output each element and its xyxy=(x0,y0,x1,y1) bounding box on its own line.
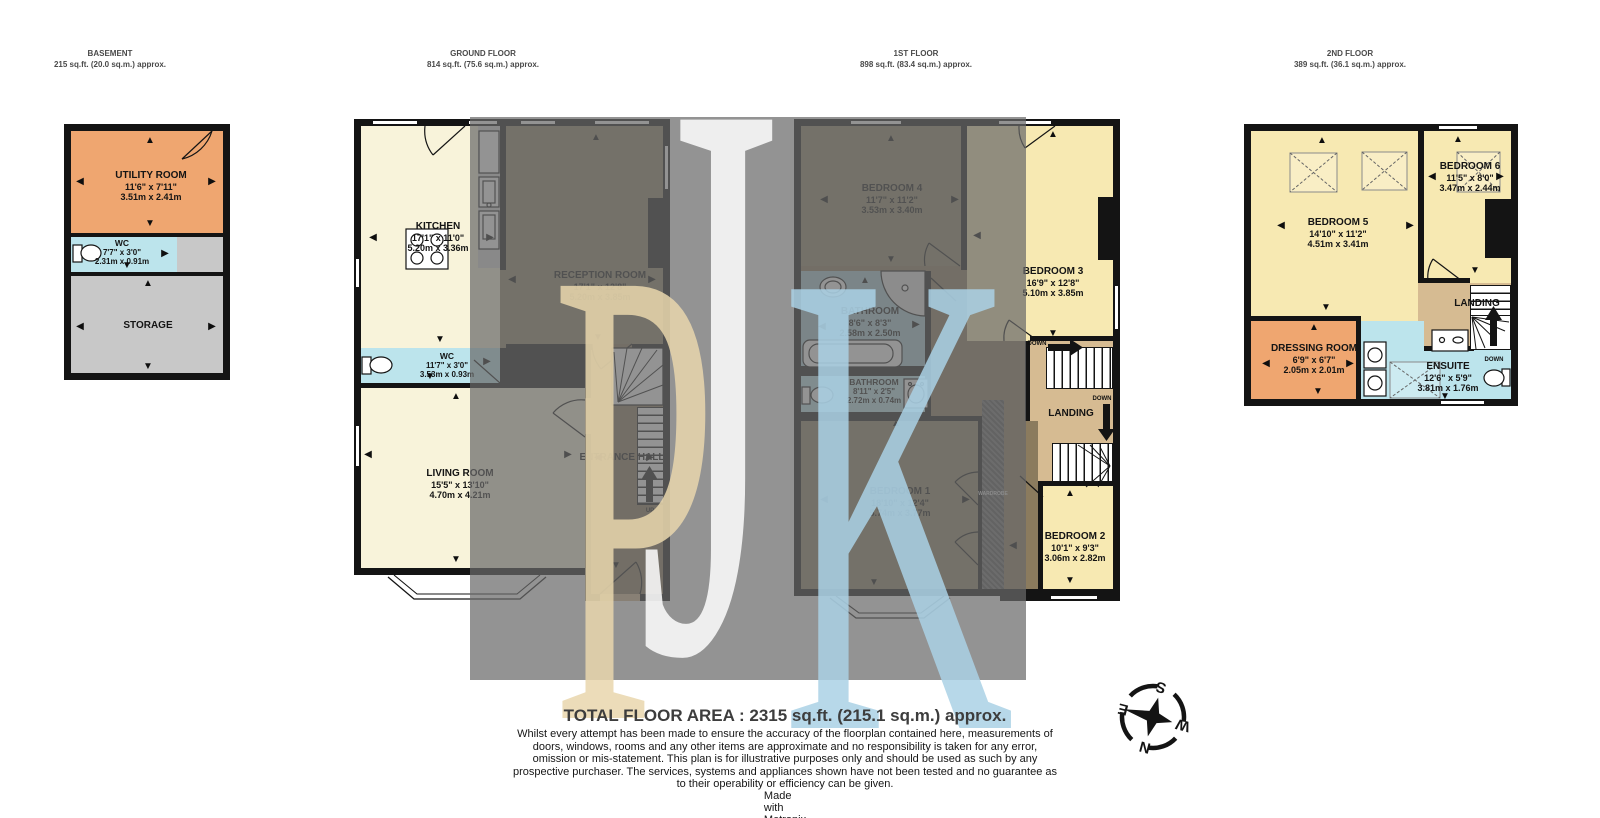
direction-arrow-icon: ▶ xyxy=(208,177,216,187)
direction-arrow-icon: ▲ xyxy=(143,279,153,289)
direction-arrow-icon: ▶ xyxy=(486,233,494,243)
direction-arrow-icon: ▲ xyxy=(1309,323,1319,333)
floor-header-ground: GROUND FLOOR 814 sq.ft. (75.6 sq.m.) app… xyxy=(427,48,539,70)
direction-arrow-icon: ▶ xyxy=(1406,221,1414,231)
svg-text:N: N xyxy=(1138,737,1153,756)
direction-arrow-icon: ▲ xyxy=(860,276,870,286)
direction-arrow-icon: ▼ xyxy=(122,261,132,271)
direction-arrow-icon: ▼ xyxy=(435,335,445,345)
label-kitchen: KITCHEN 17'1" x 11'0" 5.20m x 3.36m xyxy=(407,221,468,254)
direction-arrow-icon: ▲ xyxy=(1453,135,1463,145)
direction-arrow-icon: ◀ xyxy=(594,453,602,463)
direction-arrow-icon: ▼ xyxy=(1065,576,1075,586)
window xyxy=(520,120,556,125)
direction-arrow-icon: ▼ xyxy=(1321,303,1331,313)
direction-arrow-icon: ▶ xyxy=(564,450,572,460)
direction-arrow-icon: ▲ xyxy=(451,392,461,402)
direction-arrow-icon: ◀ xyxy=(1009,541,1017,551)
direction-arrow-icon: ▼ xyxy=(425,372,435,382)
label-bed4: BEDROOM 4 11'7" x 11'2" 3.53m x 3.40m xyxy=(861,183,922,216)
window xyxy=(1114,285,1119,330)
direction-arrow-icon: ▶ xyxy=(951,195,959,205)
direction-arrow-icon: ▶ xyxy=(1496,172,1504,182)
svg-text:E: E xyxy=(1116,699,1130,718)
direction-arrow-icon: ▲ xyxy=(891,419,901,429)
direction-arrow-icon: ▲ xyxy=(1048,130,1058,140)
label-utility: UTILITY ROOM 11'6" x 7'11" 3.51m x 2.41m xyxy=(115,170,186,203)
direction-arrow-icon: ▼ xyxy=(145,219,155,229)
direction-arrow-icon: ◀ xyxy=(820,195,828,205)
label-bed1: BEDROOM 1 18'10" x 12'4" 5.74m x 3.77m xyxy=(869,486,930,519)
label-bed2: BEDROOM 2 10'1" x 9'3" 3.06m x 2.82m xyxy=(1044,531,1105,564)
window xyxy=(850,120,902,125)
window xyxy=(664,145,669,190)
direction-arrow-icon: ◀ xyxy=(369,233,377,243)
direction-arrow-icon: ▶ xyxy=(646,453,654,463)
direction-arrow-icon: ▼ xyxy=(869,578,879,588)
direction-arrow-icon: ◀ xyxy=(508,275,516,285)
direction-arrow-icon: ◀ xyxy=(818,322,826,332)
direction-arrow-icon: ▶ xyxy=(1346,359,1354,369)
label-living: LIVING ROOM 15'5" x 13'10" 4.70m x 4.21m xyxy=(426,468,493,501)
window xyxy=(998,120,1052,125)
label-dressing: DRESSING ROOM 6'9" x 6'7" 2.05m x 2.01m xyxy=(1271,343,1357,376)
label-bed5: BEDROOM 5 14'10" x 11'2" 4.51m x 3.41m xyxy=(1307,217,1368,250)
direction-arrow-icon: ▶ xyxy=(161,249,169,259)
direction-arrow-icon: ▼ xyxy=(1313,387,1323,397)
label-ensuite: ENSUITE 12'6" x 5'9" 3.81m x 1.76m xyxy=(1417,361,1478,394)
floor-header-second: 2ND FLOOR 389 sq.ft. (36.1 sq.m.) approx… xyxy=(1294,48,1406,70)
label-reception: RECEPTION ROOM 17'1" x 12'8" 5.20m x 3.8… xyxy=(554,270,646,303)
window xyxy=(1438,125,1478,130)
direction-arrow-icon: ▼ xyxy=(593,333,603,343)
direction-arrow-icon: ▼ xyxy=(886,255,896,265)
second-stairs-winder xyxy=(1470,315,1511,350)
compass-icon: N E S W xyxy=(1105,668,1205,768)
direction-arrow-icon: ◀ xyxy=(76,177,84,187)
floor-header-basement: BASEMENT 215 sq.ft. (20.0 sq.m.) approx. xyxy=(54,48,166,70)
metropix-credit: Made with Metropix ©2023 xyxy=(764,790,806,818)
label-landing1: LANDING xyxy=(1048,408,1094,420)
label-storage: STORAGE xyxy=(123,320,172,332)
total-floor-area: TOTAL FLOOR AREA : 2315 sq.ft. (215.1 sq… xyxy=(564,706,1007,726)
kitchen-counter xyxy=(478,126,500,268)
window xyxy=(355,258,360,288)
room-reception xyxy=(500,126,663,348)
direction-arrow-icon: ◀ xyxy=(1428,172,1436,182)
direction-arrow-icon: ▲ xyxy=(591,133,601,143)
direction-arrow-icon: ▶ xyxy=(648,275,656,285)
direction-arrow-icon: ▼ xyxy=(611,561,621,571)
stairs-down-label: DOWN xyxy=(1093,396,1112,402)
direction-arrow-icon: ◀ xyxy=(820,495,828,505)
front-door-threshold xyxy=(600,594,640,601)
direction-arrow-icon: ▼ xyxy=(1470,266,1480,276)
direction-arrow-icon: ▼ xyxy=(1440,392,1450,402)
svg-text:W: W xyxy=(1173,715,1192,735)
stairs-down-label: DOWN xyxy=(1485,357,1504,363)
direction-arrow-icon: ◀ xyxy=(76,322,84,332)
label-bed6: BEDROOM 6 11'5" x 8'0" 3.47m x 2.44m xyxy=(1439,161,1500,194)
direction-arrow-icon: ▶ xyxy=(962,495,970,505)
window xyxy=(594,120,650,125)
direction-arrow-icon: ◀ xyxy=(1277,221,1285,231)
label-bath2: BATHROOM 8'11" x 2'5" 2.72m x 0.74m xyxy=(847,377,901,406)
window xyxy=(468,120,498,125)
direction-arrow-icon: ▲ xyxy=(1065,489,1075,499)
window xyxy=(372,120,418,125)
direction-arrow-icon: ▼ xyxy=(451,555,461,565)
direction-arrow-icon: ◀ xyxy=(973,231,981,241)
stairs-down-label: DOWN xyxy=(1028,341,1047,347)
label-landing2: LANDING xyxy=(1454,298,1500,310)
window xyxy=(355,425,360,467)
room-bed3 xyxy=(967,126,1113,341)
svg-text:S: S xyxy=(1154,678,1168,697)
floor-header-first: 1ST FLOOR 898 sq.ft. (83.4 sq.m.) approx… xyxy=(860,48,972,70)
bed6-chimney xyxy=(1485,199,1511,258)
direction-arrow-icon: ◀ xyxy=(364,450,372,460)
direction-arrow-icon: ▲ xyxy=(145,136,155,146)
label-bath1: BATHROOM 8'6" x 8'3" 2.58m x 2.50m xyxy=(839,306,900,339)
direction-arrow-icon: ▲ xyxy=(1317,136,1327,146)
disclaimer-text: Whilst every attempt has been made to en… xyxy=(513,728,1058,791)
direction-arrow-icon: ▶ xyxy=(208,322,216,332)
label-bed3: BEDROOM 3 16'9" x 12'8" 5.10m x 3.85m xyxy=(1022,266,1083,299)
room-basement-wc-side xyxy=(177,237,223,272)
reception-chimney xyxy=(648,198,663,268)
direction-arrow-icon: ◀ xyxy=(1262,359,1270,369)
window xyxy=(1050,595,1098,600)
direction-arrow-icon: ▶ xyxy=(483,357,491,367)
direction-arrow-icon: ▼ xyxy=(143,362,153,372)
bed3-chimney xyxy=(1098,197,1113,260)
floorplan-canvas: BASEMENT 215 sq.ft. (20.0 sq.m.) approx.… xyxy=(0,0,1600,818)
direction-arrow-icon: ▶ xyxy=(912,320,920,330)
label-wardrobe: WARDROBE xyxy=(978,491,1008,497)
direction-arrow-icon: ▲ xyxy=(886,134,896,144)
direction-arrow-icon: ▼ xyxy=(1048,329,1058,339)
stairs-up-label: UP xyxy=(646,508,654,514)
first-stairs-up xyxy=(1046,347,1113,389)
